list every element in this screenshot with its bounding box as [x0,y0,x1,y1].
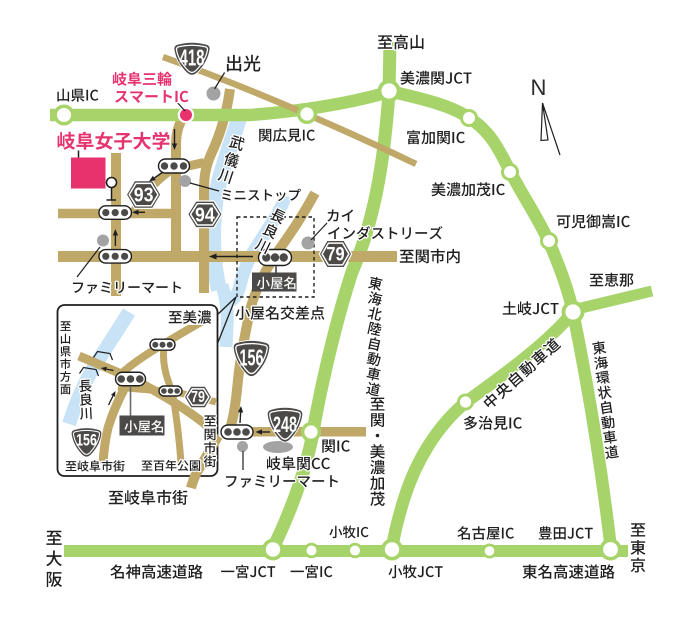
svg-text:156: 156 [76,432,97,450]
svg-text:79: 79 [326,245,344,266]
svg-text:156: 156 [240,345,264,371]
svg-text:N: N [531,75,547,100]
svg-text:418: 418 [180,45,205,71]
svg-text:93: 93 [134,184,154,207]
svg-text:94: 94 [195,203,215,226]
svg-text:248: 248 [273,412,297,437]
svg-text:79: 79 [191,389,205,406]
